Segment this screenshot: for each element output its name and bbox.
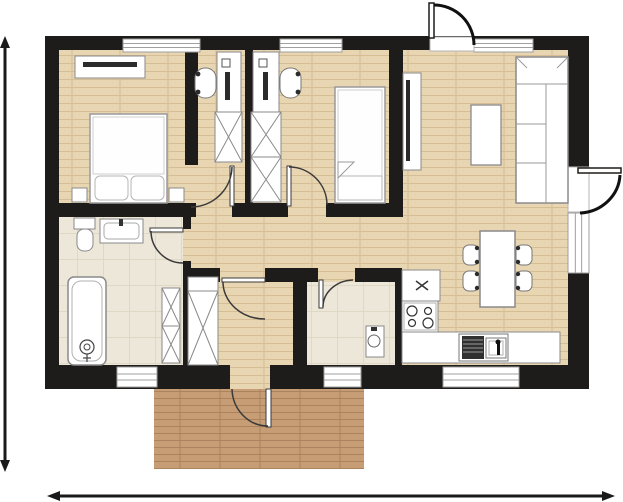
terrace-door-leaf [266, 389, 271, 427]
chair3-knob2 [516, 260, 520, 264]
wall-wc-kitchen [395, 268, 402, 365]
toilet-bowl [77, 229, 93, 251]
nightstand-left [72, 188, 87, 202]
wall-bath-vestibule [183, 282, 188, 365]
terrace-floor [154, 389, 364, 469]
dimension-arrow-down [0, 460, 10, 472]
kids-chair-knob2 [296, 90, 301, 95]
wall-lower-seg2 [265, 268, 318, 282]
master-pillow-right [131, 176, 164, 200]
wall-south-seg2 [232, 203, 288, 217]
wall-lower-seg3 [355, 268, 402, 282]
wall-living-west [389, 50, 403, 217]
wc-door-leaf [319, 280, 323, 308]
sink-faucet-head [496, 340, 501, 345]
burner-3 [409, 320, 416, 327]
master-doorway [185, 165, 198, 203]
floor-plan [0, 0, 623, 502]
bathroom-cabinet-upper [162, 288, 180, 326]
window-wc-south [324, 367, 361, 387]
study-chair-knob2 [196, 90, 201, 95]
nightstand-right [169, 188, 184, 202]
kids-monitor [263, 72, 268, 100]
tv-unit [403, 73, 421, 170]
bathroom-cabinet-lower [162, 326, 180, 363]
wc-washbasin-bowl [368, 335, 380, 347]
window-living-east [568, 213, 589, 273]
study-wardrobe [215, 112, 242, 162]
coffee-table [471, 105, 501, 165]
window-kids-north [280, 39, 342, 52]
burner-4 [423, 318, 433, 328]
kids-chair-knob1 [296, 72, 301, 77]
window-kitchen-south [443, 367, 519, 387]
wall-bath-east-upper [183, 217, 191, 229]
wc-washbasin-faucet [371, 327, 377, 331]
window-living-north [474, 39, 533, 52]
kids-wardrobe-lower [251, 157, 281, 202]
master-pillow-left [95, 176, 128, 200]
study-chair-knob1 [196, 72, 201, 77]
sofa [516, 57, 568, 203]
living-tv [406, 80, 410, 161]
wall-vestibule-wc [293, 282, 307, 365]
burner-1 [407, 306, 417, 316]
window-bathroom-south [117, 367, 157, 387]
chair4-knob1 [516, 272, 520, 276]
dimension-arrow-left [47, 491, 60, 501]
floor-plan-canvas [0, 0, 623, 502]
terrace-doorway [230, 365, 270, 389]
master-tv [83, 62, 137, 67]
chair3-knob1 [516, 246, 520, 250]
hall-wardrobe-top [188, 277, 218, 291]
chair4-knob2 [516, 286, 520, 290]
window-master-north [123, 39, 200, 52]
kids-wardrobe-upper [251, 112, 281, 157]
kids-desk-item [259, 59, 267, 67]
chair2-knob2 [475, 286, 479, 290]
wall-south-seg3 [326, 203, 403, 217]
single-bed-foot [338, 176, 382, 200]
side-door-leaf [578, 168, 621, 173]
burner-2 [425, 308, 432, 315]
washbasin-faucet [119, 219, 123, 226]
toilet-cistern [74, 218, 95, 229]
bathroom-door-leaf [150, 228, 183, 232]
wall-south-seg1 [59, 203, 196, 217]
dining-table [480, 231, 515, 307]
vestibule-door-leaf [222, 278, 265, 282]
entrance-threshold [430, 37, 474, 51]
chair1-knob2 [475, 260, 479, 264]
bathtub [68, 277, 106, 365]
master-bed-blanket [93, 117, 164, 174]
study-desk-item [222, 59, 230, 67]
chair1-knob1 [475, 246, 479, 250]
entrance-door-leaf [429, 3, 434, 38]
stove [402, 301, 438, 332]
study-monitor [225, 72, 230, 100]
dimension-arrow-right [602, 491, 615, 501]
sink-faucet [497, 343, 500, 355]
kids-door-leaf [287, 166, 291, 206]
hall-wardrobe [188, 291, 218, 365]
dimension-arrow-up [0, 36, 10, 48]
chair2-knob1 [475, 272, 479, 276]
